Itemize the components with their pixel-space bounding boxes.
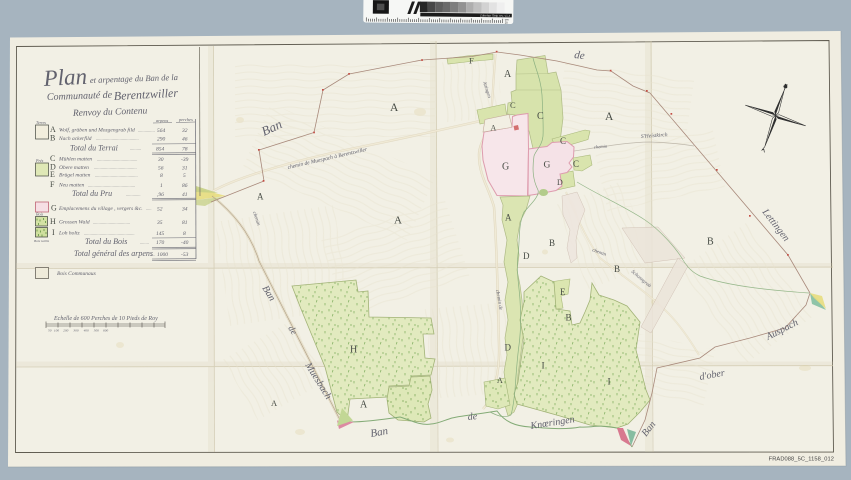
svg-text:A: A: [605, 111, 614, 123]
svg-text:Bois: Bois: [36, 212, 44, 217]
svg-text:56: 56: [158, 166, 164, 172]
svg-text:564: 564: [157, 127, 166, 134]
svg-text:86: 86: [182, 183, 188, 189]
svg-text:A: A: [497, 376, 503, 385]
svg-text:...............: ...............: [138, 128, 155, 133]
svg-text:H: H: [50, 217, 56, 226]
svg-text:B: B: [549, 238, 555, 248]
svg-text:8: 8: [160, 173, 163, 179]
svg-text:..............................: ........................................…: [84, 231, 135, 236]
svg-text:-39: -39: [181, 157, 189, 163]
svg-text:5: 5: [183, 173, 186, 179]
svg-text:Mühlen matten: Mühlen matten: [58, 157, 92, 163]
svg-text:Echelle de 600 Perches de 10 P: Echelle de 600 Perches de 10 Pieds de Ro…: [53, 316, 158, 322]
svg-text:de: de: [574, 49, 586, 62]
svg-text:..............................: .................................: [93, 220, 130, 225]
svg-text:Total du Bois: Total du Bois: [85, 237, 127, 246]
svg-text:Prés: Prés: [35, 158, 44, 163]
svg-text:G: G: [502, 162, 509, 173]
svg-text:Total général des arpens: Total général des arpens: [74, 249, 153, 258]
svg-text:,96: ,96: [157, 192, 164, 198]
svg-text:E: E: [560, 287, 566, 297]
svg-text:..............................: ....................................: [97, 157, 138, 162]
svg-text:A: A: [504, 69, 512, 80]
svg-text:Brügel matten: Brügel matten: [59, 173, 91, 179]
svg-text:E: E: [50, 170, 55, 179]
svg-text:B: B: [614, 264, 620, 274]
svg-text:B: B: [566, 313, 572, 323]
svg-text:A: A: [271, 398, 278, 408]
svg-text:B: B: [707, 237, 714, 248]
svg-text:B: B: [50, 134, 55, 143]
svg-text:.....: .....: [146, 206, 152, 211]
svg-text:A: A: [257, 192, 264, 202]
svg-text:170: 170: [156, 240, 165, 246]
svg-text:35: 35: [156, 220, 163, 226]
svg-text:..............................: ........................................…: [88, 183, 135, 188]
svg-text:C: C: [510, 100, 516, 110]
svg-text:arpens: arpens: [156, 118, 168, 123]
svg-text:I: I: [608, 378, 611, 388]
svg-text:I: I: [52, 228, 55, 237]
svg-text:de: de: [467, 411, 478, 423]
svg-text:Bois Communaux: Bois Communaux: [57, 271, 97, 277]
svg-text:Total du Pru: Total du Pru: [72, 189, 112, 198]
svg-text:F: F: [469, 56, 474, 66]
svg-text:854: 854: [156, 146, 165, 153]
svg-text:D: D: [505, 343, 512, 353]
svg-text:C: C: [560, 136, 566, 146]
svg-text:A: A: [491, 124, 497, 133]
svg-text:A: A: [360, 400, 368, 411]
svg-text:Obere matten: Obere matten: [59, 165, 89, 171]
svg-text:I: I: [542, 362, 545, 372]
svg-text:Terres: Terres: [36, 120, 46, 125]
svg-text:....: ....: [151, 252, 156, 257]
svg-text:30: 30: [157, 157, 164, 163]
svg-text:D: D: [557, 178, 563, 187]
svg-text:Grossen Wald: Grossen Wald: [59, 220, 90, 226]
svg-text:46: 46: [182, 136, 188, 143]
svg-text:81: 81: [182, 220, 188, 226]
svg-text:A: A: [505, 213, 512, 223]
svg-text:1000: 1000: [157, 252, 168, 258]
svg-text:Loh holtz: Loh holtz: [58, 231, 80, 237]
svg-text:A: A: [390, 102, 399, 114]
svg-text:G: G: [544, 161, 551, 171]
svg-text:chemin: chemin: [594, 144, 608, 150]
svg-text:A: A: [394, 215, 402, 227]
svg-text:..............................: ......................................: [96, 136, 139, 141]
svg-text:290: 290: [157, 137, 166, 143]
svg-text:41: 41: [182, 191, 188, 198]
svg-text:-40: -40: [181, 239, 189, 246]
svg-text:32: 32: [181, 128, 188, 134]
svg-text:..............................: ......................................: [94, 165, 137, 170]
svg-text:Communauté de: Communauté de: [47, 90, 113, 103]
svg-text:C: C: [573, 159, 579, 169]
svg-text:1: 1: [160, 183, 163, 189]
svg-text:145: 145: [156, 230, 165, 237]
svg-text:..........: ..........: [130, 146, 141, 151]
svg-text:8: 8: [183, 231, 186, 237]
svg-text:25: 25: [505, 20, 509, 24]
svg-text:50 100 200 300: 50 100 200 300 400 500 600: [48, 329, 108, 333]
svg-text:Wolf, gräben und Mozgengrab fi: Wolf, gräben und Mozgengrab fild: [59, 127, 135, 134]
svg-text:FRAD088_5C_1158_012: FRAD088_5C_1158_012: [769, 457, 834, 463]
svg-text:F: F: [50, 180, 55, 189]
svg-text:perches: perches: [178, 117, 193, 122]
svg-text:31: 31: [181, 166, 188, 172]
svg-text:D: D: [523, 251, 530, 261]
svg-text:78: 78: [182, 147, 188, 153]
svg-text:........: ........: [140, 240, 149, 245]
svg-text:34: 34: [181, 206, 188, 213]
svg-text:H: H: [350, 345, 357, 356]
svg-text:C: C: [537, 111, 544, 122]
svg-text:Neu matten: Neu matten: [58, 183, 84, 189]
svg-text:.............: .............: [126, 192, 141, 197]
svg-text:..............................: ......................................: [95, 173, 138, 178]
svg-text:Emplacemens du village , verge: Emplacemens du village , vergers &c.: [58, 206, 143, 212]
svg-text:52: 52: [157, 207, 163, 213]
svg-text:Nach ackerfild: Nach ackerfild: [58, 135, 92, 142]
svg-text:Bois taillis: Bois taillis: [34, 239, 50, 243]
svg-text:Total du Terrai: Total du Terrai: [70, 144, 118, 153]
svg-text:Plan: Plan: [42, 64, 88, 91]
svg-text:-53: -53: [181, 252, 189, 258]
svg-text:G: G: [51, 204, 57, 213]
